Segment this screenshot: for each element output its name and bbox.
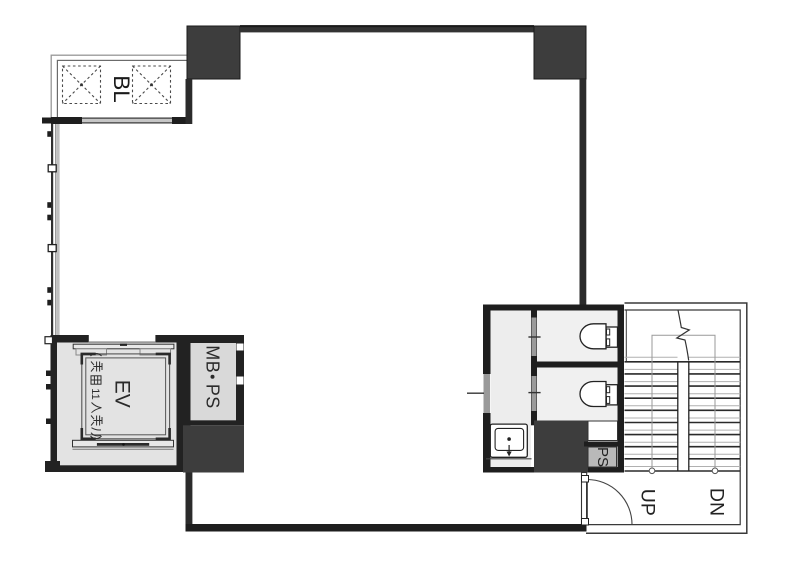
svg-text:11: 11 bbox=[89, 388, 101, 399]
svg-text:DN: DN bbox=[706, 488, 728, 516]
svg-text:UP: UP bbox=[636, 489, 658, 516]
svg-text:EV: EV bbox=[111, 380, 134, 408]
svg-text:BL: BL bbox=[109, 75, 134, 103]
svg-text:PS: PS bbox=[594, 447, 611, 467]
